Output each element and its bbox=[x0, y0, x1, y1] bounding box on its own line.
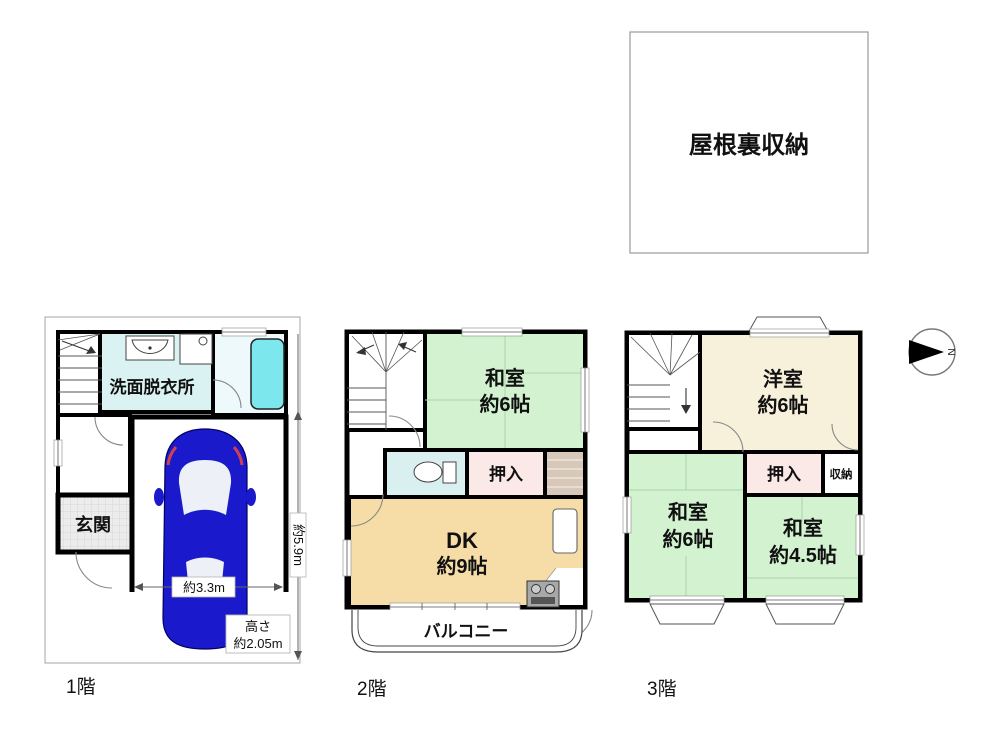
yoshitsu-label2: 約6帖 bbox=[757, 393, 808, 417]
floorplan-page: 屋根裏収納 N bbox=[0, 0, 1000, 732]
floor-1-plan: 約3.3m 約5.9m 高さ 約2.05m 洗面脱衣所 玄関 1階 bbox=[45, 317, 306, 698]
balcony-label: バルコニー bbox=[424, 622, 509, 641]
shunou-label: 収納 bbox=[830, 467, 853, 481]
dk-label2: 約9帖 bbox=[436, 554, 487, 578]
entrance-label: 玄関 bbox=[75, 514, 111, 535]
balcony: バルコニー bbox=[352, 610, 582, 652]
washitsu45-label2: 約4.5帖 bbox=[769, 543, 837, 567]
stair-landing-strip bbox=[545, 450, 585, 497]
clearance-line1: 高さ bbox=[245, 619, 271, 634]
stairs-3f bbox=[627, 333, 700, 429]
floor-2-plan: バルコニー 和室 約6帖 押入 DK 約9帖 2階 bbox=[343, 328, 592, 700]
garage-clearance-box: 高さ 約2.05m bbox=[226, 615, 290, 653]
stairs-1f bbox=[58, 332, 102, 415]
washitsu6-2f-label1: 和室 bbox=[485, 366, 525, 390]
attic-label: 屋根裏収納 bbox=[689, 131, 809, 159]
bathtub-icon bbox=[251, 339, 284, 409]
floor-3-plan: 洋室 約6帖 押入 収納 和室 約6帖 和室 約4.5帖 3階 bbox=[623, 317, 864, 700]
washitsu45-label1: 和室 bbox=[783, 516, 823, 540]
floor3-caption: 3階 bbox=[647, 678, 677, 700]
sink-icon bbox=[126, 336, 174, 360]
attic-storage-box: 屋根裏収納 bbox=[630, 32, 868, 253]
bay-window-bottom-left bbox=[650, 604, 724, 624]
toilet-icon bbox=[414, 462, 456, 483]
floor2-caption: 2階 bbox=[357, 678, 387, 700]
washroom-label: 洗面脱衣所 bbox=[110, 377, 195, 397]
floor1-caption: 1階 bbox=[66, 676, 96, 698]
floorplan-canvas: 屋根裏収納 N bbox=[0, 0, 1000, 732]
yoshitsu-label1: 洋室 bbox=[763, 367, 803, 391]
dim-height-label: 約5.9m bbox=[291, 524, 306, 566]
clearance-line2: 約2.05m bbox=[233, 636, 282, 651]
hall-1f bbox=[58, 415, 130, 495]
room-yoshitsu bbox=[700, 333, 860, 452]
bay-window-bottom-right bbox=[766, 604, 844, 624]
fridge-icon bbox=[553, 509, 577, 553]
washitsu6-3f-label2: 約6帖 bbox=[662, 527, 713, 551]
washitsu6-3f-label1: 和室 bbox=[668, 500, 708, 524]
compass-icon: N bbox=[909, 329, 956, 375]
washer-icon bbox=[180, 334, 212, 364]
dk-label1: DK bbox=[446, 528, 478, 553]
stove-icon bbox=[527, 581, 559, 607]
washitsu6-2f-label2: 約6帖 bbox=[479, 392, 530, 416]
oshiire-2f-label: 押入 bbox=[489, 464, 523, 484]
dim-width-label: 約3.3m bbox=[183, 580, 225, 595]
oshiire-3f-label: 押入 bbox=[767, 464, 801, 484]
compass-north-label: N bbox=[945, 348, 956, 355]
